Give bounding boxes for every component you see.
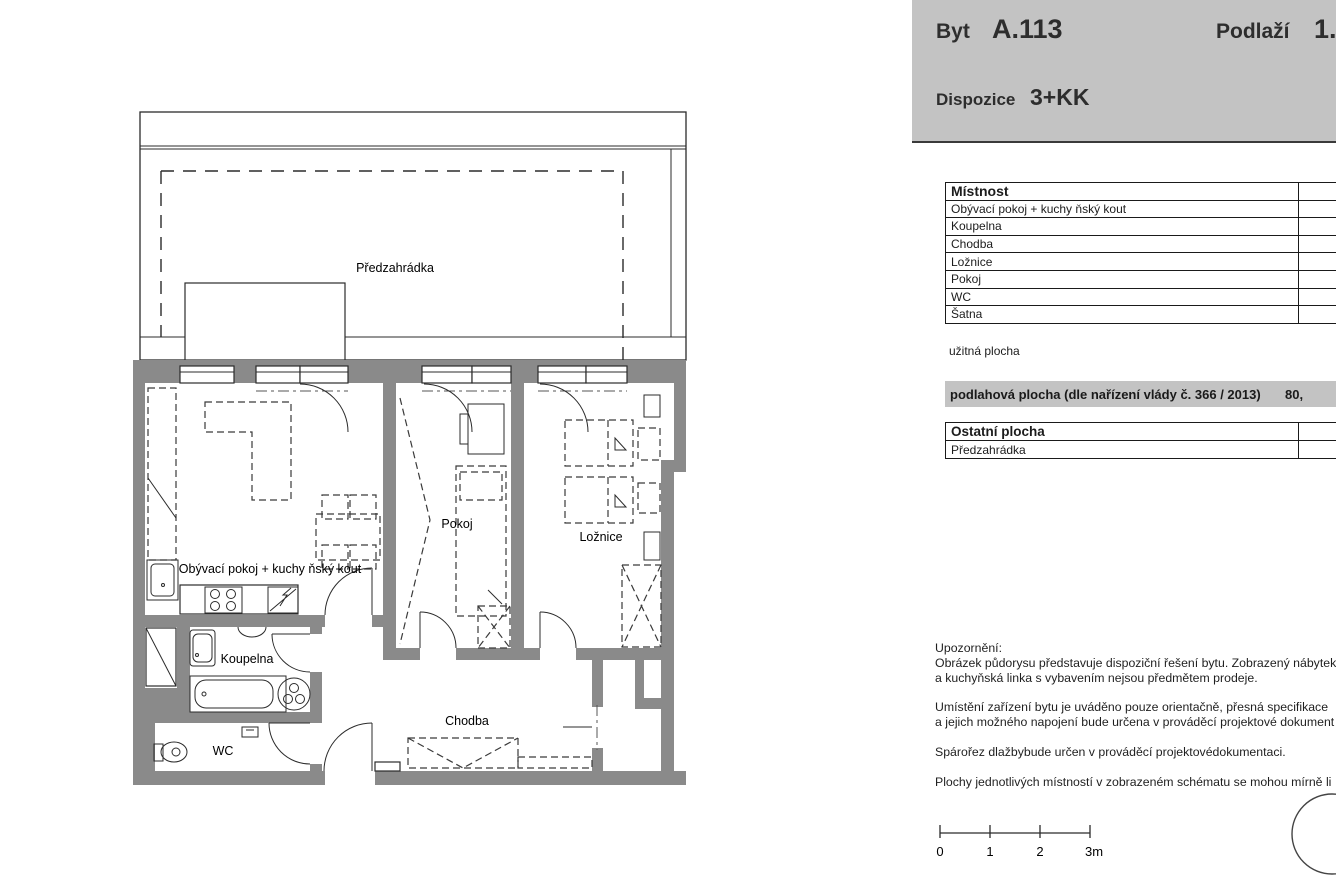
hall-furniture (408, 738, 592, 768)
wc-door (269, 723, 310, 764)
notes-line: a kuchyňská linka s vybavením nejsou pře… (935, 671, 1258, 685)
hall-wardrobe (408, 738, 518, 768)
disclaimer-notes: Upozornění: Obrázek půdorysu představuje… (935, 0, 1336, 891)
notes-line: a jejich možného napojení bude určena v … (935, 715, 1334, 729)
label-bathroom: Koupelna (221, 652, 274, 666)
bed-twin-2 (565, 477, 633, 523)
nightstand (638, 483, 660, 513)
label-wc: WC (213, 744, 234, 758)
bathroom-door (272, 634, 310, 672)
sofa (205, 402, 291, 500)
closet-sliding-door (563, 705, 597, 750)
kitchen-counter-bottom (180, 585, 298, 614)
dining-chair (350, 495, 376, 519)
washing-machine (278, 678, 310, 710)
living-room-furniture (147, 388, 380, 614)
label-bedroom: Ložnice (579, 530, 622, 544)
kitchen-counter-left (148, 388, 176, 560)
notes-title: Upozornění: (935, 641, 1002, 655)
dining-chair (322, 495, 348, 519)
radiator (238, 627, 266, 637)
washbasin (190, 630, 215, 666)
wc-fixtures (154, 727, 258, 762)
label-hall: Chodba (445, 714, 489, 728)
terrace (185, 283, 345, 360)
desk (468, 404, 504, 454)
bed-twin-1 (565, 420, 633, 466)
label-room: Pokoj (441, 517, 472, 531)
bathtub (190, 676, 286, 712)
room-door (420, 612, 456, 648)
bed-single (456, 466, 506, 616)
label-garden: Předzahrádka (356, 261, 434, 275)
floorplan-page: { "header": { "unit_label": "Byt", "unit… (0, 0, 1336, 891)
bathroom-fixtures (190, 627, 310, 712)
notes-line: Spárořez dlažbybude určen v prováděcí pr… (935, 745, 1286, 759)
label-living: Obývací pokoj + kuchy ňský kout (179, 562, 362, 576)
bedroom-furniture (565, 395, 661, 647)
garden-area (140, 112, 686, 360)
entrance-door (324, 723, 400, 771)
notes-line: Obrázek půdorysu představuje dispoziční … (935, 656, 1336, 670)
notes-line: Plochy jednotlivých místností v zobrazen… (935, 775, 1331, 789)
toilet (161, 742, 187, 762)
vent (242, 727, 258, 737)
shaft (146, 628, 176, 686)
bedroom-door (540, 612, 576, 648)
doors (269, 568, 597, 771)
nightstand (638, 428, 660, 460)
notes-line: Umístění zařízení bytu je uváděno pouze … (935, 700, 1328, 714)
